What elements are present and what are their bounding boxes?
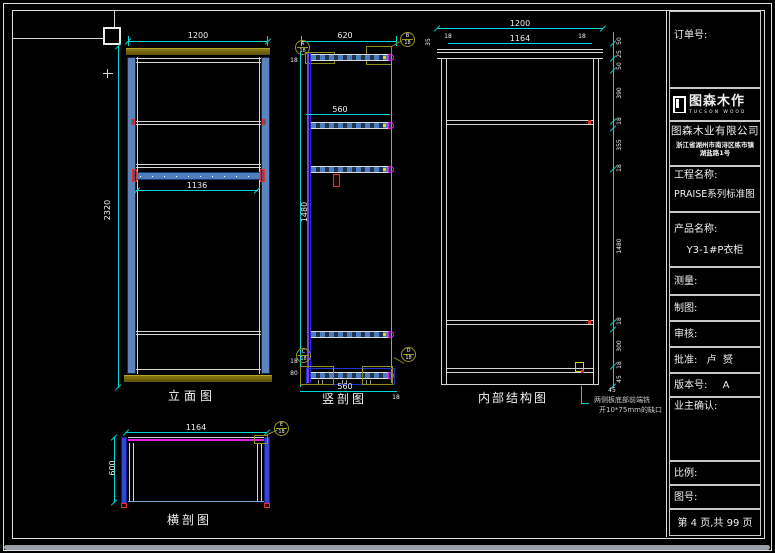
elev-shelf-line xyxy=(136,331,261,332)
elev-shelf-line xyxy=(136,334,261,335)
project-label: 工程名称: xyxy=(674,170,756,183)
product-label: 产品名称: xyxy=(674,224,756,237)
elevation-view-label: 立面图 xyxy=(168,390,216,402)
int-base-line xyxy=(441,384,599,385)
vsec-shelf-dim: 560 xyxy=(320,106,360,114)
int-left-side-panel xyxy=(441,59,447,385)
vsec-base80-dim: 80 xyxy=(288,371,300,377)
title-block: 订单号: 图森木作 TUCSON WOOD 图森木业有限公司 浙江省湖州市南浔区… xyxy=(666,10,763,537)
hsec-depth-dim: 600 xyxy=(109,454,117,482)
measure-label: 测量: xyxy=(674,276,697,287)
elev-top-panel-line xyxy=(136,62,261,63)
hsec-inner-edge xyxy=(129,443,130,501)
elev-interior-edge xyxy=(259,57,260,374)
elev-right-side-panel xyxy=(261,57,270,374)
vsec-corner18-dim: 18 xyxy=(390,395,402,401)
hsec-left-side-panel xyxy=(121,437,127,504)
hsection-view-label: 横剖图 xyxy=(167,514,212,526)
int-bottom-panel-line xyxy=(447,372,593,373)
version-label: 版本号: xyxy=(674,380,707,391)
elev-shelf-line xyxy=(136,124,261,125)
scale-row: 比例: xyxy=(669,461,761,485)
draft-label: 制图: xyxy=(674,303,697,314)
order-number-label: 订单号: xyxy=(674,30,707,41)
hsec-width-dim-line xyxy=(126,432,267,433)
int-topleft-dim: 35 xyxy=(426,34,432,50)
int-top-panel xyxy=(437,49,603,59)
datum-line-vertical xyxy=(114,10,115,27)
elev-shelf-fitting xyxy=(262,119,266,125)
approve-value: 卢 赟 xyxy=(707,355,733,366)
hsec-inner-edge xyxy=(257,443,258,501)
int-shelf-line xyxy=(447,320,593,321)
company-row: 图森木业有限公司 浙江省湖州市南浔区练市镇 湖盐路1号 xyxy=(669,121,761,166)
vsec-shelf-dim-line xyxy=(306,114,390,115)
int-side-left-dim: 18 xyxy=(442,34,454,40)
int-chain-dim: 300 xyxy=(617,336,623,356)
int-inner-dim-line xyxy=(448,43,592,44)
company-name: 图森木业有限公司 xyxy=(671,125,759,138)
vsec-bottom-dim: 560 xyxy=(325,383,365,391)
vsec-shelf xyxy=(311,122,391,129)
vsec-dowel xyxy=(383,333,386,336)
elev-top-crown xyxy=(126,48,270,55)
int-chain-dim: 18 xyxy=(617,311,623,331)
project-row: 工程名称: PRAISE系列标准图 xyxy=(669,166,761,212)
vsec-top-panel xyxy=(311,54,391,61)
version-value: A xyxy=(723,380,730,391)
draft-row: 制图: xyxy=(669,295,761,321)
elev-shelf-line xyxy=(136,167,261,168)
detail-box-e xyxy=(254,435,268,444)
vsec-hang-dim: 1480 xyxy=(301,197,309,227)
drawing-number-label: 图号: xyxy=(674,492,697,503)
elev-rod-bracket xyxy=(260,169,265,182)
vsec-base18-dim: 18 xyxy=(288,359,300,365)
hsec-inner-edge xyxy=(133,443,134,501)
callout-e: E 18 xyxy=(274,421,289,436)
callout-b: B 18 xyxy=(400,32,415,47)
tucson-logo-icon xyxy=(673,96,686,113)
datum-block-symbol xyxy=(103,27,121,45)
hsec-back-panel xyxy=(128,439,264,441)
review-row: 审核: xyxy=(669,321,761,347)
approve-row: 批准: 卢 赟 xyxy=(669,347,761,373)
hsec-width-dim: 1164 xyxy=(176,424,216,432)
int-right-side-panel xyxy=(593,59,599,385)
elev-shelf-line xyxy=(136,121,261,122)
elev-left-side-panel xyxy=(127,57,136,374)
vsection-view-label: 竖剖图 xyxy=(322,393,367,405)
int-shelf-fitting xyxy=(588,120,591,124)
version-row: 版本号: A xyxy=(669,373,761,397)
milling-note-line1: 两侧板底部前端铣 xyxy=(594,396,650,404)
int-chain-dim: 390 xyxy=(617,83,623,103)
hsec-front-line xyxy=(128,501,264,502)
elev-base-board xyxy=(124,375,272,382)
int-chain-dim: 18 xyxy=(617,158,623,178)
scale-label: 比例: xyxy=(674,468,697,479)
int-shelf-line xyxy=(447,324,593,325)
page-row: 第 4 页,共 99 页 xyxy=(669,509,761,536)
elev-shelf-fitting xyxy=(131,119,135,125)
hsec-corner-fitting xyxy=(121,503,127,508)
project-value: PRAISE系列标准图 xyxy=(674,189,756,201)
vsec-back-gap-dim: 18 xyxy=(288,58,300,64)
elev-shelf-line xyxy=(136,164,261,165)
hsec-inner-edge xyxy=(261,443,262,501)
logo-name: 图森木作 xyxy=(689,94,746,110)
datum-line-horizontal xyxy=(13,38,103,39)
int-shelf-line xyxy=(447,120,593,121)
logo-row: 图森木作 TUCSON WOOD xyxy=(669,88,761,121)
int-chain-dim: 50 xyxy=(617,56,623,76)
int-chain-dim: 355 xyxy=(617,135,623,155)
elev-height-dim: 2320 xyxy=(104,195,112,225)
drawing-number-row: 图号: xyxy=(669,485,761,509)
vsec-shelf xyxy=(311,331,391,338)
review-label: 审核: xyxy=(674,329,697,340)
elev-interior-edge xyxy=(137,57,138,374)
measure-row: 测量: xyxy=(669,267,761,295)
hsec-corner-fitting xyxy=(264,503,270,508)
int-width-dim-line xyxy=(437,28,603,29)
logo-subtitle: TUCSON WOOD xyxy=(689,110,746,116)
note-leader xyxy=(581,403,589,404)
vsec-depth-dim-line xyxy=(301,41,397,42)
internal-view-label: 内部结构图 xyxy=(478,392,548,404)
vsec-dowel xyxy=(383,124,386,127)
int-inner-dim: 1164 xyxy=(496,35,544,43)
owner-confirm-row: 业主确认: xyxy=(669,397,761,461)
datum-cross-icon xyxy=(107,69,108,78)
detail-box-d xyxy=(362,366,393,385)
page-indicator: 第 4 页,共 99 页 xyxy=(678,518,753,529)
company-address-2: 湖盐路1号 xyxy=(671,149,759,157)
note-leader xyxy=(581,386,582,404)
elev-rod-dim: 1136 xyxy=(177,182,217,190)
product-value: Y3-1#P衣柜 xyxy=(674,245,756,258)
int-chain-dim-line xyxy=(613,32,614,388)
elev-height-dim-line xyxy=(118,46,119,388)
int-note-dim: 45 xyxy=(605,388,619,394)
int-chain-dim: 18 xyxy=(617,111,623,131)
vsec-depth-dim: 620 xyxy=(325,32,365,40)
horizontal-scrollbar[interactable] xyxy=(4,545,770,550)
int-top-panel-line xyxy=(437,52,603,53)
callout-d: D 18 xyxy=(401,347,416,362)
owner-confirm-label: 业主确认: xyxy=(674,401,717,412)
elev-bottom-line xyxy=(136,369,261,370)
int-width-dim: 1200 xyxy=(500,20,540,28)
elev-width-dim-line xyxy=(128,41,268,42)
hsec-top-line xyxy=(128,437,264,438)
int-shelf-fitting xyxy=(588,320,591,324)
int-chain-dim: 1480 xyxy=(617,234,623,258)
elev-rod-dots xyxy=(140,176,258,177)
datum-cross-icon xyxy=(103,73,113,74)
elev-width-dim: 1200 xyxy=(178,32,218,40)
int-chain-dim: 45 xyxy=(617,369,623,389)
product-row: 产品名称: Y3-1#P衣柜 xyxy=(669,212,761,267)
order-number-row: 订单号: xyxy=(669,11,761,88)
int-bottom-panel-line xyxy=(447,368,593,369)
elev-top-panel-line xyxy=(136,58,261,59)
vsec-dowel xyxy=(383,168,386,171)
vsec-dowel xyxy=(383,56,386,59)
milling-note-line2: 开10*75mm的缺口 xyxy=(599,406,662,414)
vsec-rod-bracket xyxy=(333,174,340,187)
vsec-shelf xyxy=(311,166,391,173)
elev-rod-bracket xyxy=(132,169,137,182)
approve-label: 批准: xyxy=(674,355,697,366)
int-side-right-dim: 18 xyxy=(576,34,588,40)
elev-rod-dim-line xyxy=(136,190,258,191)
int-shelf-line xyxy=(447,124,593,125)
int-notch-fitting xyxy=(581,370,584,373)
hsec-right-side-panel xyxy=(264,437,270,504)
